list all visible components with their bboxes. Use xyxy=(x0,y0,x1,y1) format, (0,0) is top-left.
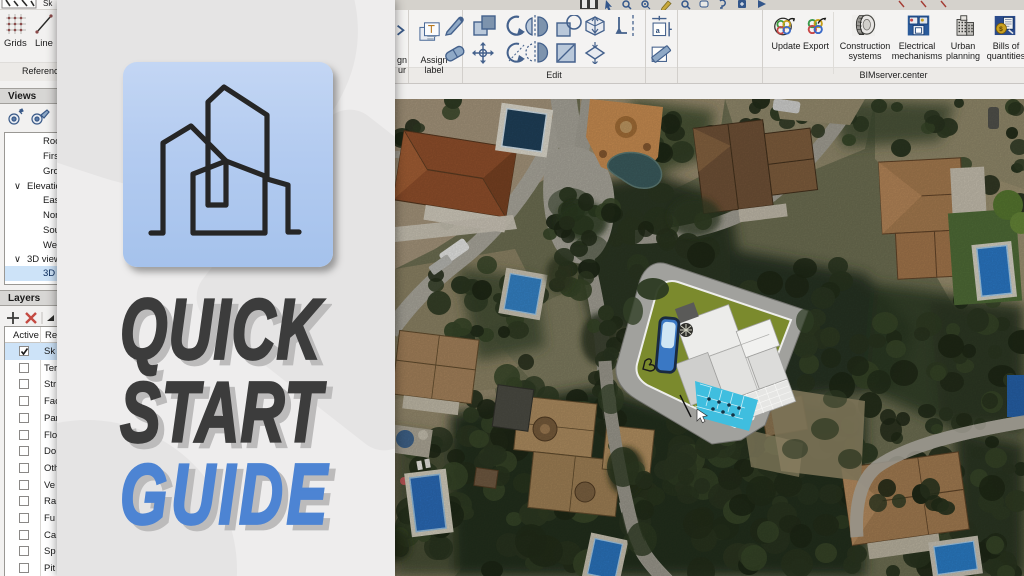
svg-text:$: $ xyxy=(999,26,1003,33)
